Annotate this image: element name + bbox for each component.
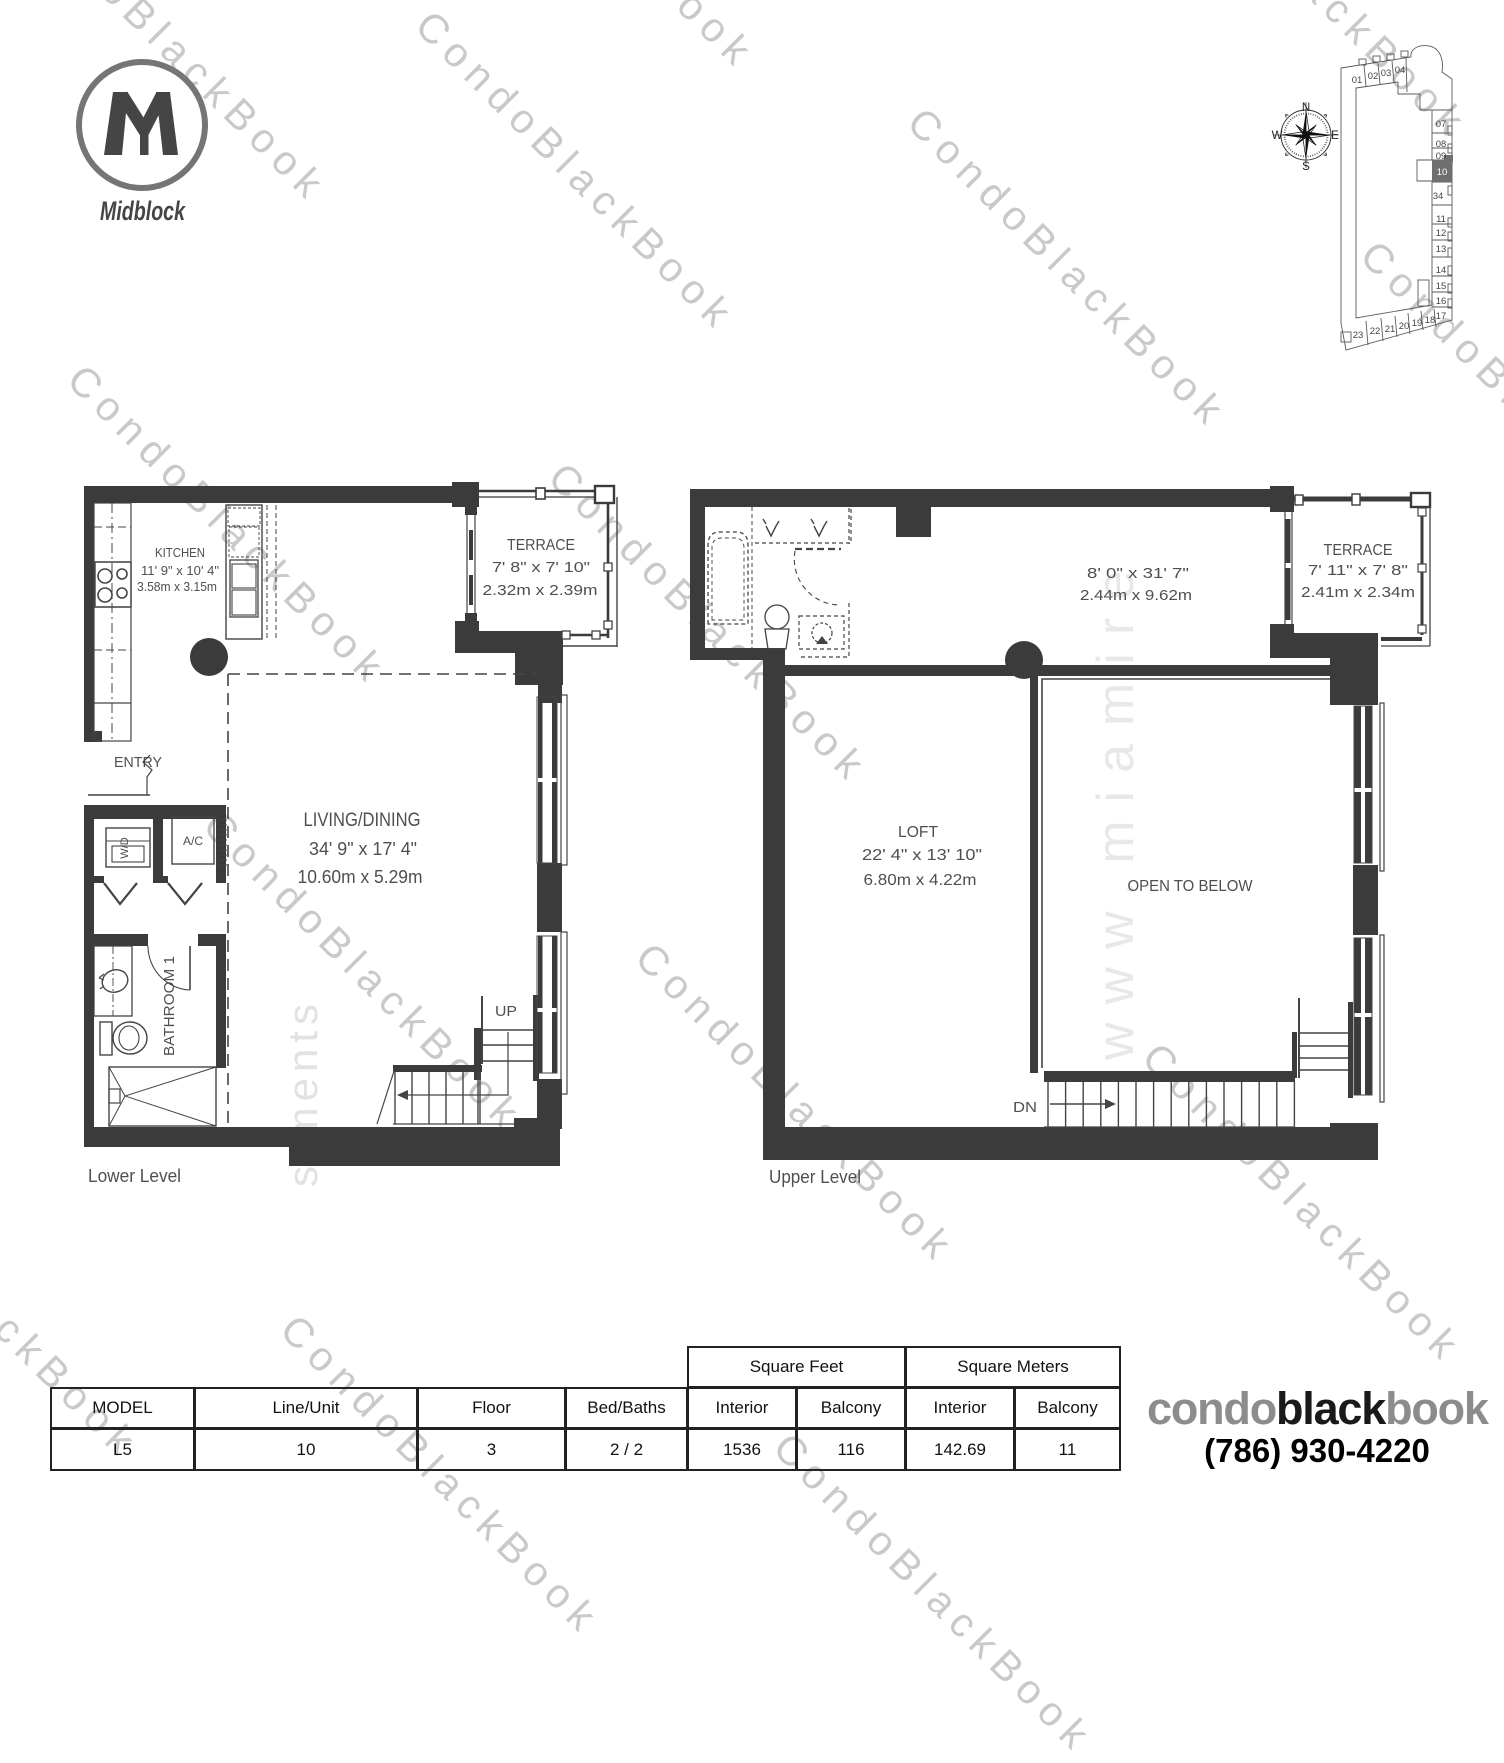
svg-text:22' 4" x 13' 10": 22' 4" x 13' 10" [862, 847, 982, 864]
svg-text:BATHROOM 1: BATHROOM 1 [161, 956, 178, 1056]
svg-text:10: 10 [1437, 167, 1448, 178]
svg-text:7' 11" x 7' 8": 7' 11" x 7' 8" [1308, 563, 1408, 579]
svg-text:11' 9" x 10' 4": 11' 9" x 10' 4" [141, 564, 219, 578]
svg-text:16: 16 [1436, 296, 1447, 307]
svg-text:E: E [1331, 130, 1339, 142]
svg-text:A/C: A/C [183, 834, 203, 848]
svg-text:22: 22 [1370, 326, 1381, 337]
svg-text:6.80m x 4.22m: 6.80m x 4.22m [864, 872, 977, 889]
svg-text:7' 8" x 7' 10": 7' 8" x 7' 10" [492, 560, 590, 576]
svg-text:2.41m x 2.34m: 2.41m x 2.34m [1301, 585, 1415, 601]
svg-text:18: 18 [1425, 315, 1436, 326]
svg-text:2.32m x 2.39m: 2.32m x 2.39m [483, 583, 598, 599]
svg-text:TERRACE: TERRACE [1324, 542, 1393, 559]
svg-text:34' 9" x 17' 4": 34' 9" x 17' 4" [309, 839, 417, 859]
svg-text:01: 01 [1352, 75, 1363, 86]
svg-text:Upper Level: Upper Level [769, 1167, 861, 1187]
svg-text:3.58m x 3.15m: 3.58m x 3.15m [137, 580, 217, 594]
svg-text:TERRACE: TERRACE [507, 537, 575, 554]
svg-text:W: W [1272, 130, 1283, 142]
svg-text:Lower Level: Lower Level [88, 1166, 181, 1186]
svg-text:ENTRY: ENTRY [114, 754, 162, 771]
svg-text:12: 12 [1436, 228, 1447, 239]
svg-text:34: 34 [1433, 191, 1444, 202]
svg-text:21: 21 [1385, 324, 1396, 335]
svg-text:20: 20 [1399, 321, 1410, 332]
svg-text:02: 02 [1368, 71, 1379, 82]
svg-text:14: 14 [1436, 265, 1447, 276]
svg-text:03: 03 [1381, 68, 1392, 79]
svg-text:8' 0" x 31' 7": 8' 0" x 31' 7" [1087, 565, 1189, 582]
svg-text:10.60m x 5.29m: 10.60m x 5.29m [298, 867, 423, 887]
svg-text:OPEN TO BELOW: OPEN TO BELOW [1128, 878, 1253, 895]
svg-text:2.44m x 9.62m: 2.44m x 9.62m [1080, 587, 1192, 604]
svg-text:KITCHEN: KITCHEN [155, 545, 205, 560]
svg-text:19: 19 [1412, 318, 1423, 329]
svg-text:UP: UP [495, 1003, 517, 1020]
svg-text:07: 07 [1436, 119, 1447, 130]
svg-text:09: 09 [1436, 151, 1447, 162]
svg-text:04: 04 [1395, 65, 1406, 76]
svg-text:LOFT: LOFT [898, 824, 938, 841]
svg-text:08: 08 [1436, 139, 1447, 150]
svg-text:15: 15 [1436, 281, 1447, 292]
svg-text:17: 17 [1436, 311, 1447, 322]
svg-text:DN: DN [1013, 1099, 1037, 1116]
svg-text:W/D: W/D [119, 837, 131, 858]
svg-text:Midblock: Midblock [100, 196, 186, 226]
svg-text:LIVING/DINING: LIVING/DINING [304, 810, 421, 831]
svg-text:23: 23 [1353, 330, 1364, 341]
svg-text:13: 13 [1436, 244, 1447, 255]
svg-text:11: 11 [1436, 214, 1446, 225]
